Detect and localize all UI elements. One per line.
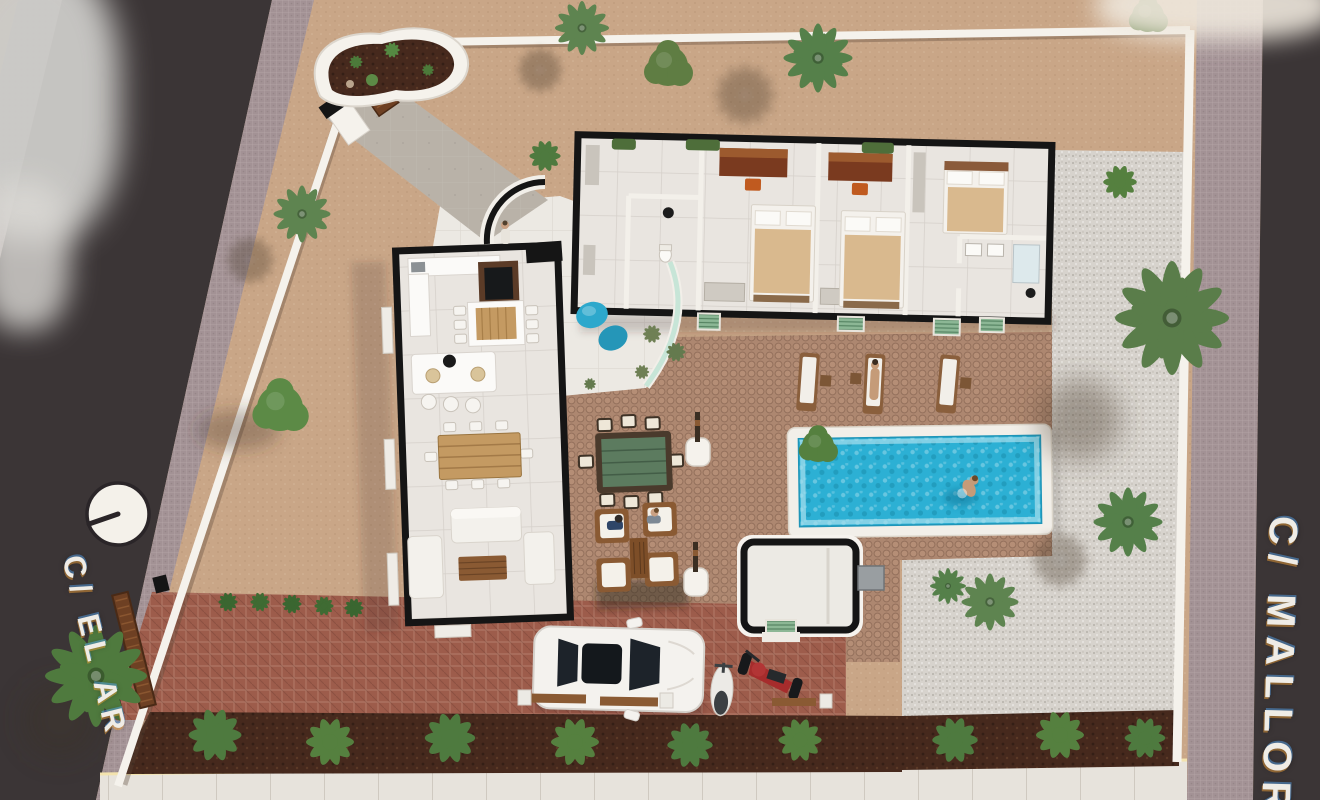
ac-unit xyxy=(858,566,884,590)
stone xyxy=(346,80,354,88)
desk-chair xyxy=(852,183,868,195)
chair xyxy=(454,306,466,315)
lounge-chair xyxy=(596,557,631,592)
cooktop xyxy=(411,262,425,272)
lounge-table xyxy=(629,538,648,579)
bed xyxy=(749,205,815,303)
wardrobe xyxy=(704,283,744,302)
person-standing xyxy=(501,221,510,245)
outdoor-chair xyxy=(579,455,593,467)
sidewalk-right xyxy=(1187,0,1263,800)
dining-chair xyxy=(498,479,510,488)
door-sill xyxy=(387,553,399,605)
cactus-planter xyxy=(315,28,468,106)
bar-stool xyxy=(421,394,437,410)
bedroom-wing xyxy=(574,135,1052,338)
shower xyxy=(1013,245,1040,284)
entry-canopy xyxy=(525,241,562,263)
lounge-chair xyxy=(644,552,679,587)
site-plan-canvas xyxy=(0,0,1320,800)
bar-stool xyxy=(443,396,459,412)
sink xyxy=(965,243,981,255)
sofa xyxy=(408,536,444,599)
outdoor-chair xyxy=(624,496,638,508)
blur-corner-left xyxy=(0,180,70,330)
dining-chair xyxy=(521,449,533,458)
desk-chair xyxy=(745,178,761,190)
dining-chair xyxy=(470,422,482,431)
door-sill xyxy=(382,307,394,353)
window-mat xyxy=(698,313,720,329)
door-sill xyxy=(384,439,396,489)
outdoor-chair xyxy=(597,419,611,431)
toilet xyxy=(659,245,671,263)
dining-chair xyxy=(425,452,437,461)
wardrobe xyxy=(583,245,596,275)
chair xyxy=(526,320,538,329)
pool-house xyxy=(740,538,860,642)
dining-chair xyxy=(446,480,458,489)
chair xyxy=(454,320,466,329)
door-sill xyxy=(435,625,471,638)
outdoor-chair xyxy=(645,417,659,429)
bean-bag-highlight xyxy=(582,306,596,316)
wardrobe xyxy=(912,152,925,212)
chair xyxy=(526,306,538,315)
window-mat xyxy=(934,319,960,336)
door-mat xyxy=(766,620,796,634)
outdoor-chair xyxy=(600,494,614,506)
streetlight-top-icon xyxy=(87,483,149,545)
car-rear-window xyxy=(557,639,578,688)
chair xyxy=(527,334,539,343)
window-mat xyxy=(980,318,1004,333)
living-wing xyxy=(377,245,571,639)
window-mat xyxy=(838,317,864,332)
sink xyxy=(987,244,1003,256)
street-name-right: C/ MALLOR xyxy=(1252,515,1305,800)
sofa xyxy=(523,532,555,585)
cabinet-front xyxy=(484,267,513,300)
bed xyxy=(839,211,905,309)
wardrobe xyxy=(585,145,600,185)
chair xyxy=(455,334,467,343)
outdoor-chair xyxy=(621,415,635,427)
dining-chair xyxy=(496,421,508,430)
bar-stool xyxy=(426,368,440,382)
round-cactus xyxy=(366,74,378,86)
lightwell-hedge xyxy=(862,142,894,154)
car xyxy=(532,614,705,723)
car-windshield xyxy=(629,639,660,692)
dining-chair xyxy=(444,422,456,431)
kitchen-counter xyxy=(408,274,430,337)
bar-stool xyxy=(465,398,481,414)
lightwell-hedge xyxy=(686,139,720,151)
car-sunroof xyxy=(581,643,622,684)
dining-chair xyxy=(472,480,484,489)
site-plan-render: C/ EL AR C/ MALLOR xyxy=(0,0,1320,800)
bar-stool xyxy=(471,367,485,381)
pool-house-step xyxy=(762,632,800,642)
lightwell-hedge xyxy=(612,138,636,150)
bed-master xyxy=(943,161,1009,234)
